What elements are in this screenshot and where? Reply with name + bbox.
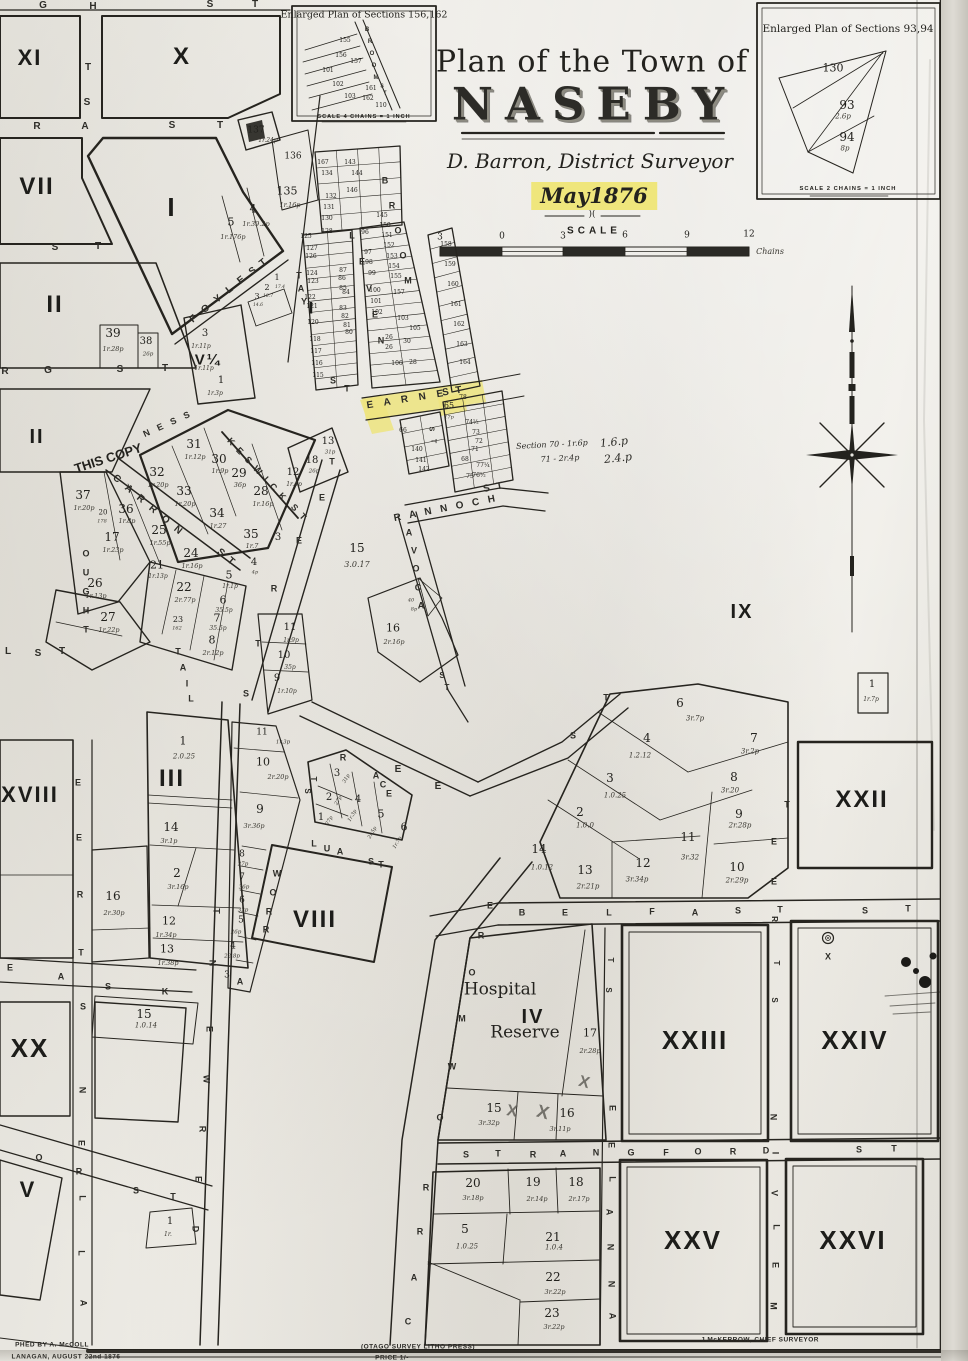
- map-label: 6: [401, 822, 408, 833]
- map-label: 1r.13p: [85, 593, 106, 600]
- map-label: 3r.22p: [543, 1324, 564, 1331]
- map-label: 26p: [143, 352, 154, 358]
- map-label: T: [59, 647, 65, 657]
- map-label: 8p: [841, 146, 850, 153]
- map-label: 2: [264, 284, 269, 292]
- map-label: 3r.11p: [549, 1126, 570, 1133]
- map-label: 178: [97, 520, 107, 525]
- map-label: 3r.2p: [741, 749, 759, 756]
- map-label: O: [399, 252, 406, 261]
- paper-fold-band: [941, 0, 968, 1361]
- map-label: 1: [180, 736, 187, 747]
- map-label: R A N N O C H: [393, 494, 499, 524]
- map-label: F: [663, 1149, 669, 1158]
- map-label: 2: [173, 867, 181, 879]
- map-label: 9: [256, 803, 264, 815]
- map-label: 35p: [284, 665, 295, 671]
- map-label: 126: [305, 254, 316, 260]
- map-label: B: [519, 909, 526, 918]
- map-label: 75: [466, 474, 474, 480]
- map-label: 22: [545, 1271, 560, 1283]
- map-label: 110: [375, 103, 386, 109]
- map-label: W: [273, 870, 282, 879]
- map-label: W: [202, 1075, 211, 1084]
- map-label: 13: [160, 944, 174, 955]
- map-label: 4: [230, 943, 236, 952]
- map-label: M: [769, 1302, 778, 1310]
- map-label: 5: [226, 570, 233, 581]
- map-label: 26: [385, 345, 393, 351]
- map-label: 26: [385, 335, 393, 341]
- map-label: B: [382, 177, 389, 186]
- map-label: L: [349, 232, 355, 241]
- map-label: E: [205, 1026, 214, 1032]
- map-label: 1: [274, 274, 279, 282]
- map-label: 164: [459, 360, 470, 366]
- map-label: XI: [18, 47, 43, 69]
- map-label: 146: [346, 188, 357, 194]
- map-label: 71 - 2r.4p: [540, 454, 579, 464]
- map-label: 144: [351, 171, 362, 177]
- map-label: 1r.16p: [252, 501, 273, 508]
- map-label: 1.0.14: [135, 1023, 157, 1030]
- map-label: 162: [453, 322, 464, 328]
- map-label: XXVI: [819, 1227, 886, 1253]
- map-label: 1r.20p: [73, 505, 94, 512]
- map-label: R: [368, 39, 372, 45]
- map-label: 151: [381, 233, 392, 239]
- map-label: B: [365, 27, 369, 33]
- map-label: C: [405, 1318, 412, 1327]
- map-label: 1r.39.2p: [242, 221, 269, 228]
- map-label: 1r.34p: [155, 932, 176, 939]
- map-label: 83: [339, 306, 347, 312]
- map-label: 4: [251, 558, 257, 568]
- map-label: R: [266, 908, 273, 917]
- map-label: 1.0.0: [576, 823, 594, 830]
- map-label: 12: [287, 468, 300, 478]
- map-label: T: [95, 242, 101, 252]
- map-label: 1r.7p: [393, 836, 404, 850]
- map-label: A: [418, 602, 425, 611]
- map-label: A: [79, 1300, 88, 1307]
- map-label: 6: [676, 697, 684, 709]
- map-label: O: [468, 969, 475, 978]
- map-label: S: [380, 85, 383, 90]
- map-label: 3r.16p: [167, 884, 188, 891]
- map-label: 23: [544, 1307, 559, 1319]
- map-label: 16: [559, 1107, 574, 1119]
- map-label: 31: [186, 438, 201, 450]
- map-label: L: [78, 1195, 87, 1201]
- map-label: XXIII: [662, 1027, 728, 1053]
- map-label: 10: [256, 757, 270, 768]
- map-label: 7: [750, 732, 758, 744]
- map-label: N: [208, 960, 217, 967]
- map-label: 1r.16p: [181, 563, 202, 570]
- map-label: O: [412, 565, 419, 574]
- map-label: O: [436, 1114, 443, 1123]
- map-label: T: [85, 63, 91, 73]
- map-label: T: [603, 694, 609, 703]
- map-label: O: [269, 889, 276, 898]
- map-label: X: [535, 1102, 551, 1122]
- map-label: R: [77, 891, 84, 900]
- map-label: T: [83, 626, 89, 635]
- map-label: A: [81, 122, 88, 132]
- map-label: 130: [823, 63, 844, 74]
- map-label: E: [7, 964, 13, 973]
- map-label: 78: [459, 395, 467, 401]
- map-label: S: [84, 98, 91, 108]
- map-label: 33: [176, 485, 191, 497]
- map-label: 5: [228, 217, 235, 228]
- map-label: 14: [163, 821, 178, 833]
- map-label: 3r.18p: [462, 1195, 483, 1202]
- map-label: 28: [409, 360, 417, 366]
- map-label: N: [593, 1149, 600, 1158]
- map-label: G: [39, 1, 47, 11]
- map-label: 80: [345, 330, 353, 336]
- map-label: O: [694, 1148, 701, 1157]
- map-label: T: [378, 861, 384, 870]
- map-label: 1: [167, 1217, 173, 1227]
- map-label: T: [212, 908, 221, 914]
- map-label: 27p: [325, 816, 334, 827]
- map-label: 21: [545, 1231, 560, 1243]
- map-label: 154: [388, 264, 399, 270]
- map-label: E: [771, 1262, 780, 1268]
- map-label: 32p: [238, 908, 249, 914]
- map-label: A: [605, 1209, 614, 1216]
- map-label: 161: [450, 302, 461, 308]
- map-label: 131: [323, 205, 334, 211]
- map-label: 3r.32p: [478, 1120, 499, 1127]
- map-label: E: [487, 902, 493, 911]
- map-label: 8p: [411, 608, 417, 613]
- map-label: X: [505, 1103, 518, 1121]
- map-label: A: [337, 848, 344, 857]
- map-label: N: [378, 337, 385, 346]
- map-label: R: [423, 1184, 430, 1193]
- map-label: 141: [415, 458, 426, 464]
- map-label: 2r.21p: [577, 884, 600, 891]
- map-label: 2r.16p: [383, 639, 404, 646]
- map-label: T: [252, 0, 258, 10]
- map-label: S: [862, 907, 868, 916]
- map-label: 1r.28p: [102, 346, 123, 353]
- map-label: E: [608, 1105, 617, 1111]
- map-label: 9: [735, 808, 743, 820]
- map-label: 1: [869, 680, 875, 690]
- map-label: 157: [350, 59, 361, 65]
- map-label: VIII: [293, 908, 337, 932]
- map-label: 28: [253, 485, 268, 497]
- footer-chief-surveyor: J.McKERROW, CHIEF SURVEYOR: [701, 1337, 819, 1344]
- map-label: XX: [11, 1035, 50, 1061]
- map-label: 1.0.12: [531, 865, 553, 872]
- map-label: 1r.: [164, 1232, 172, 1238]
- map-label: VII: [19, 175, 54, 199]
- map-label: 13: [577, 864, 592, 876]
- map-label: 23: [173, 616, 183, 624]
- map-label: 1r.12p: [184, 454, 205, 461]
- map-label: 20: [465, 1177, 480, 1189]
- map-label: 2r.5p: [368, 826, 379, 840]
- map-label: 20: [99, 510, 108, 517]
- map-label: 12: [743, 231, 754, 240]
- map-label: 24: [183, 547, 198, 559]
- map-label: Section 70 - 1r.6p: [516, 439, 588, 451]
- map-label: 35.5p: [209, 626, 226, 632]
- map-label: A: [608, 1313, 617, 1320]
- map-label: 4p: [252, 571, 258, 576]
- map-label: S: [303, 788, 311, 793]
- map-label: 16: [105, 890, 120, 902]
- map-label: A: [560, 1150, 567, 1159]
- map-label: 2r.12p: [202, 650, 223, 657]
- map-label: 135: [277, 186, 298, 197]
- map-label: S: [133, 1187, 139, 1196]
- map-label: 76½: [472, 473, 485, 479]
- map-label: A: [406, 529, 413, 538]
- map-label: T: [175, 648, 181, 657]
- map-label: K: [162, 988, 169, 997]
- map-label: 6: [239, 897, 245, 906]
- map-title-name: NASEBY: [452, 78, 736, 131]
- map-label: 8: [730, 771, 738, 783]
- map-label: 1r.13p: [148, 574, 167, 580]
- map-label: 142: [418, 467, 429, 473]
- map-label: 36p: [234, 482, 246, 489]
- map-label: T: [430, 439, 437, 443]
- map-label: 101: [370, 299, 381, 305]
- map-label: I: [186, 680, 189, 689]
- map-label: O: [394, 227, 401, 236]
- map-label: A: [180, 664, 187, 673]
- map-label: R: [271, 585, 278, 594]
- map-label: R: [1, 367, 8, 377]
- map-label: R: [389, 202, 396, 211]
- map-label: 5: [238, 917, 244, 926]
- map-label: 40: [408, 599, 414, 604]
- map-label: 1r.9p: [212, 468, 229, 475]
- map-label: XVIII: [1, 784, 59, 806]
- map-label: A: [692, 909, 699, 918]
- map-label: V: [20, 1179, 37, 1201]
- map-label: 132: [325, 194, 336, 200]
- map-label: 1r.4p: [286, 482, 302, 488]
- map-label: T: [170, 1193, 176, 1202]
- map-label: 1r.20p: [147, 482, 168, 489]
- map-label: S: [463, 1151, 469, 1160]
- map-label: 160: [447, 282, 458, 288]
- map-label: 71: [471, 447, 479, 453]
- map-label: E: [76, 834, 82, 843]
- map-label: T: [383, 92, 386, 97]
- map-label: H: [89, 2, 96, 12]
- map-label: 120: [307, 320, 318, 326]
- map-label: T: [905, 905, 911, 914]
- map-label: 123: [307, 279, 318, 285]
- map-label: 66: [399, 428, 407, 434]
- map-label: E: [77, 1140, 86, 1146]
- map-label: 8: [209, 635, 216, 646]
- map-label: 17: [104, 531, 119, 543]
- map-label: 2r.29p: [726, 878, 749, 885]
- map-label: 6: [220, 595, 227, 606]
- map-label: 127: [306, 246, 317, 252]
- map-label: 3: [275, 533, 281, 543]
- map-label: 1r.16p: [279, 202, 300, 209]
- map-label: 26p: [309, 469, 320, 475]
- map-label: L: [311, 840, 317, 849]
- map-label: A: [373, 772, 380, 781]
- map-label: 100: [369, 288, 380, 294]
- map-label: 153: [386, 254, 397, 260]
- map-label: 26p: [231, 930, 242, 936]
- map-label: Chains: [756, 248, 784, 256]
- map-label: 9: [684, 232, 690, 241]
- map-label: H: [83, 607, 90, 616]
- map-label: 159: [444, 262, 455, 268]
- map-label: 1r.11p: [191, 344, 210, 350]
- map-label: 6: [622, 232, 628, 241]
- map-label: R: [76, 1168, 83, 1177]
- map-label: E: [75, 779, 81, 788]
- map-label: 136: [284, 153, 301, 162]
- map-label: 3: [224, 972, 230, 981]
- map-label: D: [191, 1226, 200, 1233]
- map-label: O: [82, 550, 89, 559]
- map-label: S: [80, 1003, 86, 1012]
- map-label: 103: [344, 94, 355, 100]
- map-label: 1r.27: [210, 523, 227, 530]
- surveyor-credit: D. Barron, District Surveyor: [447, 149, 733, 173]
- map-label: L: [188, 695, 194, 704]
- map-label: I: [771, 1152, 780, 1155]
- map-label: S: [52, 243, 59, 253]
- map-label: 150: [379, 223, 390, 229]
- map-label: T: [344, 385, 350, 394]
- map-label: 2r.28p: [579, 1048, 600, 1055]
- map-label: 17: [583, 1028, 597, 1039]
- map-label: 3.0.17: [344, 561, 369, 569]
- map-label: 4: [355, 795, 361, 805]
- map-label: 2r.28p: [729, 823, 752, 830]
- map-label: 27p: [334, 796, 343, 807]
- map-label: 1.2.12: [629, 753, 651, 760]
- map-label: 22: [176, 581, 191, 593]
- map-label: 125: [300, 234, 311, 240]
- map-label: R: [530, 1151, 537, 1160]
- map-label: 1r.24p: [258, 138, 277, 144]
- map-label: 36p: [239, 885, 250, 891]
- map-label: E: [607, 1142, 616, 1148]
- map-label: 155: [390, 274, 401, 280]
- map-label: S: [35, 649, 42, 659]
- map-label: 4: [643, 732, 651, 744]
- map-label: 27p: [238, 862, 249, 868]
- map-label: 8: [239, 851, 245, 860]
- map-label: 3r.20: [721, 788, 739, 795]
- map-label: S: [207, 0, 214, 10]
- map-label: 68: [461, 457, 469, 463]
- map-label: 18: [568, 1176, 583, 1188]
- map-label: S T: [247, 256, 270, 277]
- map-label: O: [35, 1154, 42, 1163]
- map-label: F: [649, 908, 655, 917]
- map-label: E: [319, 494, 325, 503]
- map-label: 1r.8p: [119, 518, 136, 525]
- map-label: E: [194, 1176, 203, 1182]
- map-label: 115: [312, 373, 323, 379]
- map-label: 17p: [444, 416, 454, 421]
- map-label: A: [411, 1274, 418, 1283]
- map-label: R: [770, 916, 778, 922]
- map-label: 11: [256, 729, 267, 738]
- map-label: 3r.7p: [686, 716, 704, 723]
- map-label: 15: [486, 1102, 501, 1114]
- map-label: L: [5, 647, 11, 657]
- map-label: T: [296, 272, 302, 281]
- map-label: 32: [149, 466, 164, 478]
- map-label: 11: [680, 831, 695, 843]
- scale-label: SCALE: [567, 226, 621, 237]
- map-label: 130: [321, 216, 332, 222]
- map-label: 1r.38p: [157, 960, 178, 967]
- map-label: R: [478, 932, 485, 941]
- map-label: 5: [378, 809, 385, 820]
- map-label: XXV: [664, 1227, 722, 1253]
- inset-2-scale-note: SCALE 2 CHAINS = 1 INCH: [800, 186, 897, 192]
- map-label: N: [606, 1244, 615, 1251]
- map-label: Hospital: [464, 982, 537, 999]
- map-label: 38: [140, 337, 153, 347]
- map-label: 2: [576, 806, 584, 818]
- map-label: 2.6p: [835, 114, 851, 121]
- map-label: 122: [304, 295, 315, 301]
- map-label: T: [772, 961, 780, 966]
- map-label: 12: [635, 857, 650, 869]
- map-label: 156: [335, 53, 346, 59]
- map-label: L: [772, 1224, 781, 1230]
- map-label: 15: [349, 542, 364, 554]
- map-date-highlighted: May1876: [531, 182, 657, 210]
- label-layer: 3036912Chains)(GHSTTSRASTSTRGSTLSTOUGHTN…: [0, 0, 968, 1361]
- map-label: 2r.30p: [103, 910, 124, 917]
- map-label: 0: [499, 233, 505, 242]
- map-label: E: [562, 909, 568, 918]
- map-label: E: [359, 258, 365, 267]
- map-label: 167: [317, 160, 328, 166]
- map-label: 18.7: [263, 295, 273, 300]
- map-label: 2.4.p: [603, 451, 632, 465]
- map-label: 25: [151, 524, 166, 536]
- map-label: V: [770, 1190, 779, 1196]
- map-page: 3036912Chains)(GHSTTSRASTSTRGSTLSTOUGHTN…: [0, 0, 968, 1361]
- map-label: S: [570, 732, 576, 741]
- map-label: T: [445, 684, 450, 692]
- map-label: S: [330, 377, 336, 386]
- map-label: 157: [393, 290, 404, 296]
- map-label: Reserve: [490, 1025, 559, 1042]
- map-label: T: [777, 906, 783, 915]
- map-label: 1r.3p: [276, 740, 290, 746]
- map-label: 10: [729, 861, 744, 873]
- map-label: 3r.34p: [626, 877, 649, 884]
- map-label: W: [448, 1063, 457, 1072]
